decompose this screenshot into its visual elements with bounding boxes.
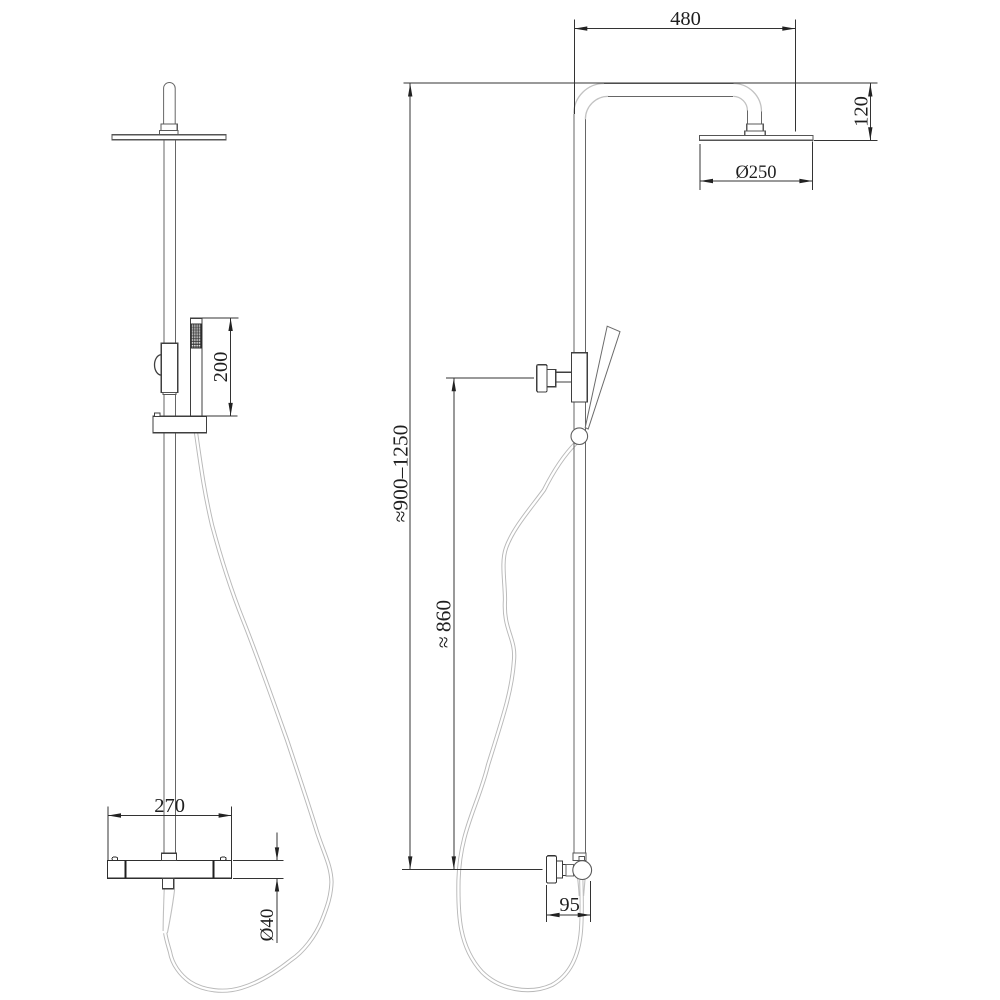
svg-text:95: 95 [559, 894, 580, 916]
svg-text:≈ 860: ≈ 860 [432, 600, 456, 648]
svg-text:270: 270 [154, 795, 185, 817]
svg-text:200: 200 [210, 352, 232, 383]
svg-text:≈900–1250: ≈900–1250 [388, 425, 412, 523]
svg-text:Ø40: Ø40 [257, 909, 278, 942]
svg-text:120: 120 [851, 96, 873, 127]
svg-text:Ø250: Ø250 [735, 163, 776, 183]
svg-text:480: 480 [670, 8, 701, 30]
